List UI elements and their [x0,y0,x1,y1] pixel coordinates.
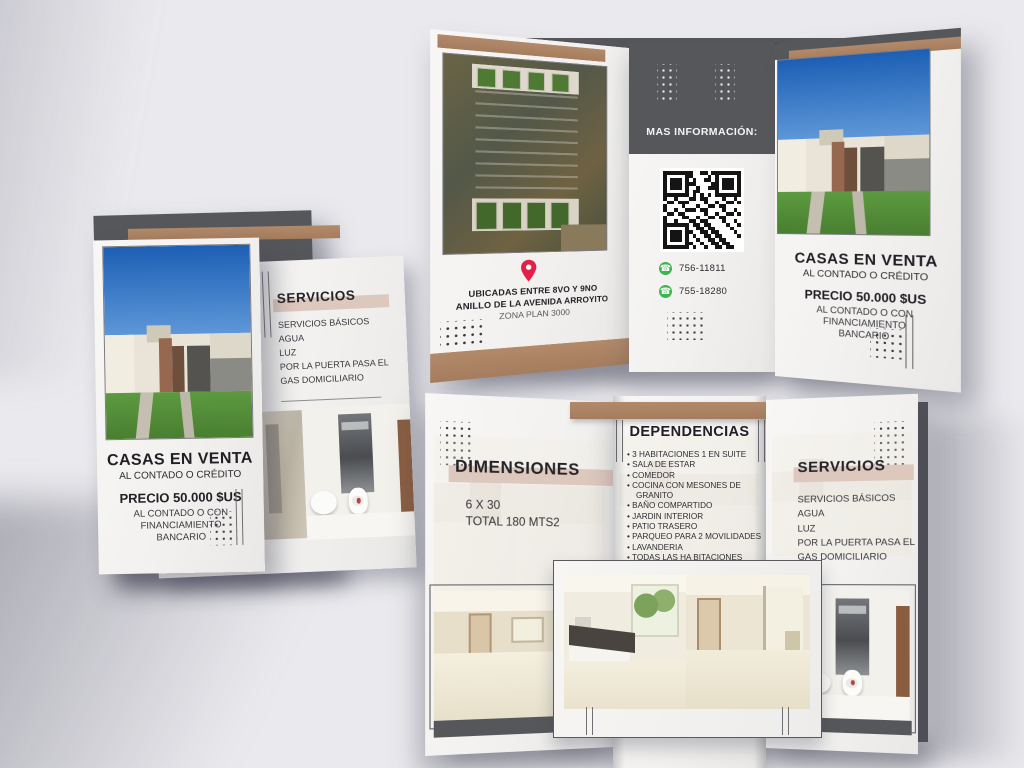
info-header: MAS INFORMACIÓN: [629,42,775,154]
dots-pattern-white [715,64,735,103]
sale-panel: CASAS EN VENTA AL CONTADO O CRÉDITO PREC… [775,28,961,393]
phone-row-1: ☎756-11811 [659,262,726,275]
corner-lines-decor [262,271,272,337]
dependencias-list-item: • JARDIN INTERIOR [627,512,763,521]
kitchen-photo [564,575,686,709]
services-heading: SERVICIOS [798,457,886,476]
dimensions-line-1: 6 X 30 [466,499,501,512]
dependencias-list-item: • LAVANDERIA [627,543,763,552]
front-title: CASAS EN VENTA [97,450,263,471]
dots-pattern [667,312,707,340]
phone-number-1: 756-11811 [679,263,726,274]
vertical-lines-decor [905,315,913,369]
services-list-item: AGUA [798,506,918,522]
divider-line [281,397,381,402]
left-brochure-front-cover: CASAS EN VENTA AL CONTADO O CRÉDITO PREC… [93,238,265,575]
interior-photos-mat [553,560,822,738]
brochure-mockup-scene: { "colors": { "background": "#eaeaee", "… [0,0,1024,768]
house-front-photo [102,244,253,441]
bathroom-photo [302,403,416,540]
bottom-trifold: DIMENSIONES 6 X 30 TOTAL 180 MTS2 DEPEND… [435,388,945,768]
vertical-lines-decor [782,707,789,735]
services-list-item: POR LA PUERTA PASA EL [798,535,918,550]
services-list: SERVICIOS BÁSICOSAGUALUZPOR LA PUERTA PA… [278,314,407,389]
phone-number-2: 755-18280 [679,286,727,297]
dependencias-list-item: • 3 HABITACIONES 1 EN SUITE [627,450,763,459]
dots-pattern-white [657,64,677,103]
services-list-item: LUZ [798,521,918,537]
dots-pattern [440,319,487,350]
dependencias-list-item: • COMEDOR [627,471,763,480]
dots-pattern [210,511,238,545]
services-list: SERVICIOS BÁSICOSAGUALUZPOR LA PUERTA PA… [798,491,918,565]
vertical-lines-decor [235,489,243,545]
info-heading: MAS INFORMACIÓN: [629,126,775,138]
dimensions-heading: DIMENSIONES [455,457,580,480]
dependencias-list-item: • PATIO TRASERO [627,522,763,531]
dependencias-list-item: • SALA DE ESTAR [627,460,763,469]
whatsapp-icon: ☎ [659,285,672,298]
dots-pattern [870,328,906,360]
front-subtitle: AL CONTADO O CRÉDITO [97,469,263,483]
aerial-photo [442,52,607,255]
left-folded-brochure: SERVICIOS SERVICIOS BÁSICOSAGUALUZPOR LA… [88,205,430,587]
dependencias-list-item: • PARQUEO PARA 2 MOVILIDADES [627,532,763,541]
dependencias-list-item: • BAÑO COMPARTIDO [627,501,763,510]
info-panel: MAS INFORMACIÓN: ☎756-11811 ☎755-18280 [629,42,775,372]
corridor-photo [258,410,308,540]
room-photo [686,575,810,709]
whatsapp-icon: ☎ [659,262,672,275]
qr-code-modules [663,171,741,249]
vertical-lines-decor [586,707,593,735]
phone-row-2: ☎755-18280 [659,285,727,298]
location-pin-icon [519,259,539,283]
dependencias-list-item: • COCINA CON MESONES DE GRANITO [627,481,763,500]
dimensions-line-2: TOTAL 180 MTS2 [466,516,560,530]
living-room-photo [434,590,566,721]
qr-code [660,168,744,252]
dependencias-heading: DEPENDENCIAS [613,424,766,440]
house-front-photo [777,48,931,236]
location-panel: UBICADAS ENTRE 8VO Y 9NO ANILLO DE LA AV… [430,29,629,383]
top-trifold: UBICADAS ENTRE 8VO Y 9NO ANILLO DE LA AV… [455,30,943,382]
